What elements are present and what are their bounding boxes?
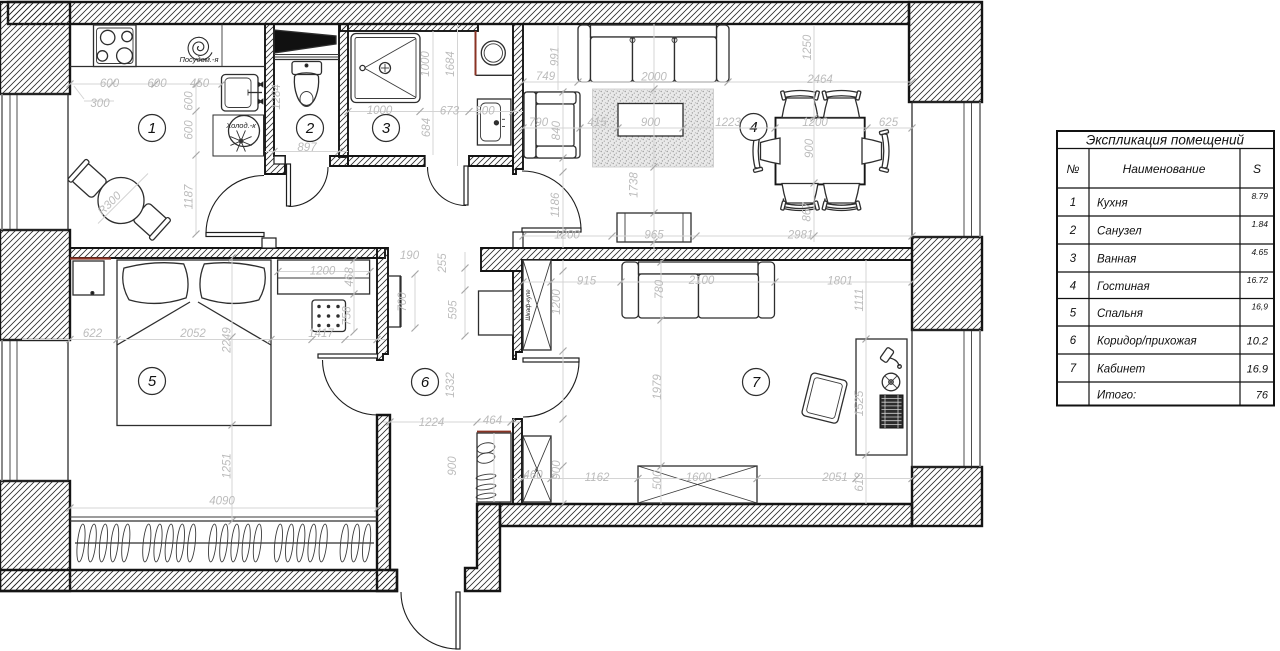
svg-text:1223: 1223 [715, 117, 741, 129]
svg-text:2: 2 [1069, 225, 1077, 237]
svg-text:1186: 1186 [550, 192, 562, 217]
svg-text:190: 190 [400, 250, 420, 262]
svg-text:1111: 1111 [854, 288, 866, 311]
svg-text:8.79: 8.79 [1251, 191, 1268, 201]
svg-text:500: 500 [475, 106, 495, 118]
svg-text:600: 600 [184, 91, 196, 111]
svg-text:1251: 1251 [222, 453, 234, 479]
svg-text:1224: 1224 [419, 417, 445, 429]
svg-text:415: 415 [587, 117, 607, 129]
svg-text:1: 1 [148, 120, 156, 137]
svg-text:Кабинет: Кабинет [1097, 364, 1146, 376]
svg-text:965: 965 [644, 230, 664, 242]
svg-text:1979: 1979 [652, 374, 664, 400]
svg-text:2: 2 [305, 120, 315, 137]
svg-text:4.65: 4.65 [1251, 247, 1268, 257]
svg-text:915: 915 [577, 276, 597, 288]
svg-text:600: 600 [184, 120, 196, 140]
svg-text:790: 790 [529, 117, 549, 129]
svg-text:255: 255 [437, 253, 449, 274]
svg-text:600: 600 [147, 78, 167, 90]
svg-text:2052: 2052 [179, 328, 206, 340]
svg-text:1250: 1250 [802, 34, 814, 60]
svg-text:Санузел: Санузел [1097, 226, 1142, 238]
svg-text:780: 780 [654, 279, 666, 299]
svg-text:625: 625 [879, 117, 899, 129]
svg-text:Холод.-к: Холод.-к [225, 121, 256, 130]
svg-text:1284: 1284 [271, 84, 283, 110]
svg-text:4090: 4090 [209, 496, 235, 508]
svg-text:5: 5 [148, 373, 157, 390]
svg-text:500: 500 [652, 470, 664, 490]
svg-text:749: 749 [536, 71, 556, 83]
svg-text:900: 900 [551, 460, 563, 480]
svg-text:1684: 1684 [445, 51, 457, 77]
svg-text:758: 758 [342, 306, 354, 326]
svg-text:1525: 1525 [854, 390, 866, 416]
svg-text:464: 464 [483, 415, 502, 427]
svg-text:6: 6 [1070, 335, 1077, 347]
svg-text:2981: 2981 [787, 230, 814, 242]
svg-text:7: 7 [752, 374, 761, 391]
svg-text:1332: 1332 [445, 372, 457, 398]
svg-text:2249: 2249 [222, 327, 234, 354]
svg-text:1200: 1200 [802, 117, 828, 129]
svg-text:460: 460 [523, 470, 543, 482]
svg-text:1801: 1801 [827, 276, 853, 288]
svg-text:Кухня: Кухня [1097, 198, 1128, 210]
svg-text:№: № [1067, 162, 1080, 176]
svg-text:2051: 2051 [821, 472, 848, 484]
svg-text:1200: 1200 [310, 266, 336, 278]
svg-text:Коридор/прихожая: Коридор/прихожая [1097, 336, 1197, 348]
svg-text:450: 450 [190, 78, 210, 90]
svg-text:2464: 2464 [806, 74, 833, 86]
svg-text:3: 3 [1070, 253, 1077, 265]
svg-text:1200: 1200 [554, 230, 580, 242]
svg-text:300: 300 [90, 98, 110, 110]
svg-text:Итого:: Итого: [1097, 389, 1136, 401]
svg-text:867: 867 [802, 202, 814, 222]
svg-text:Наименование: Наименование [1123, 162, 1206, 176]
svg-text:1162: 1162 [585, 472, 610, 484]
svg-text:468: 468 [344, 267, 356, 287]
svg-text:622: 622 [83, 328, 103, 340]
svg-text:1000: 1000 [367, 105, 393, 117]
svg-text:684: 684 [421, 118, 433, 137]
svg-text:16.72: 16.72 [1247, 275, 1269, 285]
svg-text:2000: 2000 [640, 72, 667, 84]
svg-text:840: 840 [551, 120, 563, 140]
svg-text:4: 4 [1070, 280, 1076, 292]
svg-text:1: 1 [1070, 197, 1076, 209]
svg-text:3: 3 [382, 120, 391, 137]
svg-text:673: 673 [440, 106, 460, 118]
svg-text:Гостиная: Гостиная [1097, 281, 1150, 293]
svg-text:7: 7 [1070, 363, 1077, 375]
svg-text:76: 76 [1256, 389, 1269, 401]
svg-text:Экспликация помещений: Экспликация помещений [1086, 133, 1245, 148]
svg-text:Спальня: Спальня [1097, 308, 1143, 320]
svg-text:900: 900 [804, 138, 816, 158]
svg-text:991: 991 [550, 47, 562, 66]
svg-text:700: 700 [397, 292, 409, 312]
svg-text:595: 595 [448, 300, 460, 320]
svg-text:1738: 1738 [629, 172, 641, 198]
svg-text:1000: 1000 [420, 51, 432, 77]
svg-text:S: S [1253, 162, 1261, 176]
svg-text:Посудом.-я: Посудом.-я [179, 55, 218, 64]
svg-text:900: 900 [641, 117, 661, 129]
svg-text:897: 897 [297, 142, 317, 154]
svg-text:Ванная: Ванная [1097, 254, 1136, 266]
svg-text:16.9: 16.9 [1247, 364, 1268, 376]
svg-text:Шкаф-купе: Шкаф-купе [526, 289, 532, 321]
svg-text:1200: 1200 [551, 289, 563, 315]
svg-text:1.84: 1.84 [1251, 219, 1268, 229]
svg-text:1600: 1600 [686, 472, 712, 484]
svg-text:1417: 1417 [308, 328, 334, 340]
svg-text:613: 613 [854, 472, 866, 492]
svg-text:5: 5 [1070, 307, 1077, 319]
svg-text:600: 600 [100, 78, 120, 90]
svg-text:6: 6 [421, 374, 430, 391]
svg-text:900: 900 [447, 456, 459, 476]
svg-text:2100: 2100 [688, 275, 715, 287]
svg-text:16,9: 16,9 [1251, 302, 1268, 312]
svg-text:1187: 1187 [184, 184, 196, 209]
svg-text:10.2: 10.2 [1247, 336, 1268, 348]
